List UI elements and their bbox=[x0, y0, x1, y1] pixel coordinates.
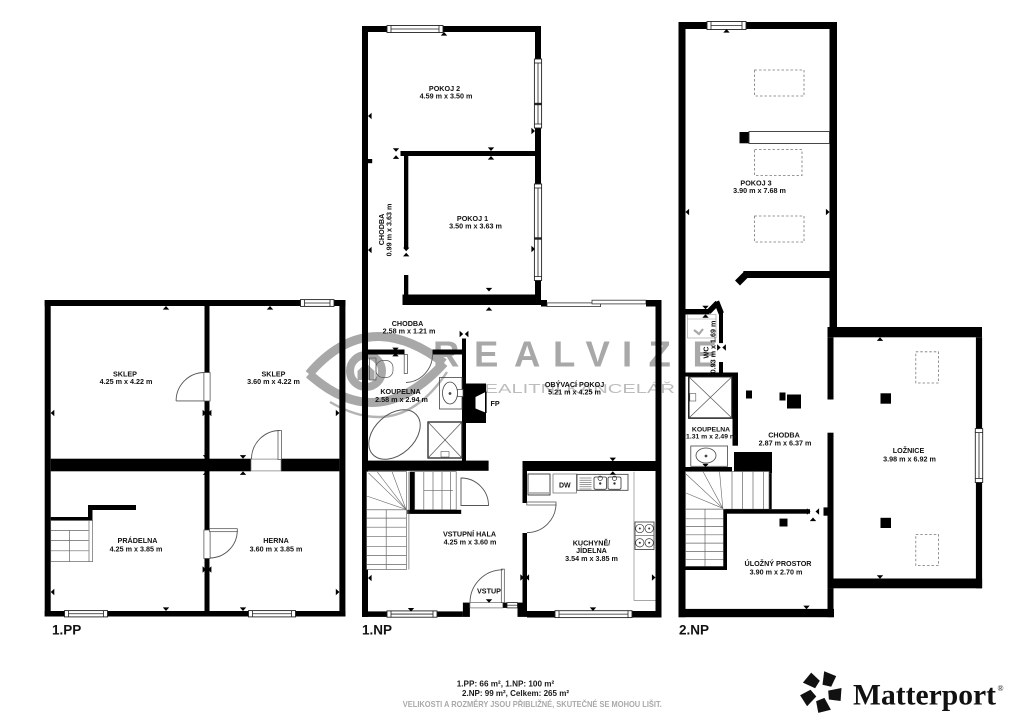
svg-text:3.60 m x 3.85 m: 3.60 m x 3.85 m bbox=[250, 545, 303, 554]
svg-text:1.NP: 1.NP bbox=[362, 623, 392, 638]
svg-text:1.31 m x 2.49 m: 1.31 m x 2.49 m bbox=[686, 434, 736, 441]
svg-text:3.90 m x 7.68 m: 3.90 m x 7.68 m bbox=[733, 186, 786, 195]
svg-text:2.87 m x 6.37 m: 2.87 m x 6.37 m bbox=[759, 439, 812, 448]
svg-text:1.PP: 1.PP bbox=[52, 623, 81, 638]
svg-text:E: E bbox=[474, 334, 498, 375]
svg-text:VELIKOSTI A ROZMĚRY JSOU PŘIBL: VELIKOSTI A ROZMĚRY JSOU PŘIBLIŽNÉ, SKUT… bbox=[403, 698, 662, 709]
svg-text:3.90 m x 2.70 m: 3.90 m x 2.70 m bbox=[750, 568, 803, 577]
svg-text:L: L bbox=[553, 334, 575, 375]
svg-text:3.98 m x 6.92 m: 3.98 m x 6.92 m bbox=[883, 455, 936, 464]
svg-text:4.25 m x 3.60 m: 4.25 m x 3.60 m bbox=[444, 538, 497, 547]
svg-text:2.NP: 2.NP bbox=[679, 623, 709, 638]
svg-text:2.58 m x 1.21 m: 2.58 m x 1.21 m bbox=[383, 327, 436, 336]
svg-text:0.99 m x 3.63 m: 0.99 m x 3.63 m bbox=[385, 204, 394, 257]
svg-text:Matterport: Matterport bbox=[853, 679, 996, 712]
svg-text:KOUPELNA: KOUPELNA bbox=[692, 427, 730, 434]
svg-text:4.25 m x 3.85 m: 4.25 m x 3.85 m bbox=[110, 545, 163, 554]
svg-text:I: I bbox=[622, 334, 632, 375]
svg-text:0.93 m x 1.69 m: 0.93 m x 1.69 m bbox=[709, 321, 718, 374]
svg-text:V: V bbox=[586, 334, 611, 375]
svg-text:4.25 m x 4.22 m: 4.25 m x 4.22 m bbox=[100, 377, 153, 386]
svg-text:3.60 m x 4.22 m: 3.60 m x 4.22 m bbox=[247, 377, 300, 386]
svg-text:VSTUP: VSTUP bbox=[477, 587, 501, 596]
svg-text:FP: FP bbox=[491, 399, 500, 408]
svg-text:3.54 m x 3.85 m: 3.54 m x 3.85 m bbox=[565, 554, 618, 563]
svg-text:2.NP: 99 m², Celkem: 265 m²: 2.NP: 99 m², Celkem: 265 m² bbox=[462, 688, 569, 698]
svg-text:DW: DW bbox=[559, 482, 571, 489]
svg-text:5.21 m x 4.25 m: 5.21 m x 4.25 m bbox=[548, 388, 601, 397]
svg-text:A: A bbox=[514, 334, 540, 375]
svg-text:4.59 m x 3.50 m: 4.59 m x 3.50 m bbox=[420, 92, 473, 101]
svg-text:®: ® bbox=[998, 684, 1004, 693]
svg-text:2.58 m x 2.94 m: 2.58 m x 2.94 m bbox=[375, 395, 428, 404]
svg-text:3.50 m x 3.63 m: 3.50 m x 3.63 m bbox=[449, 222, 502, 231]
